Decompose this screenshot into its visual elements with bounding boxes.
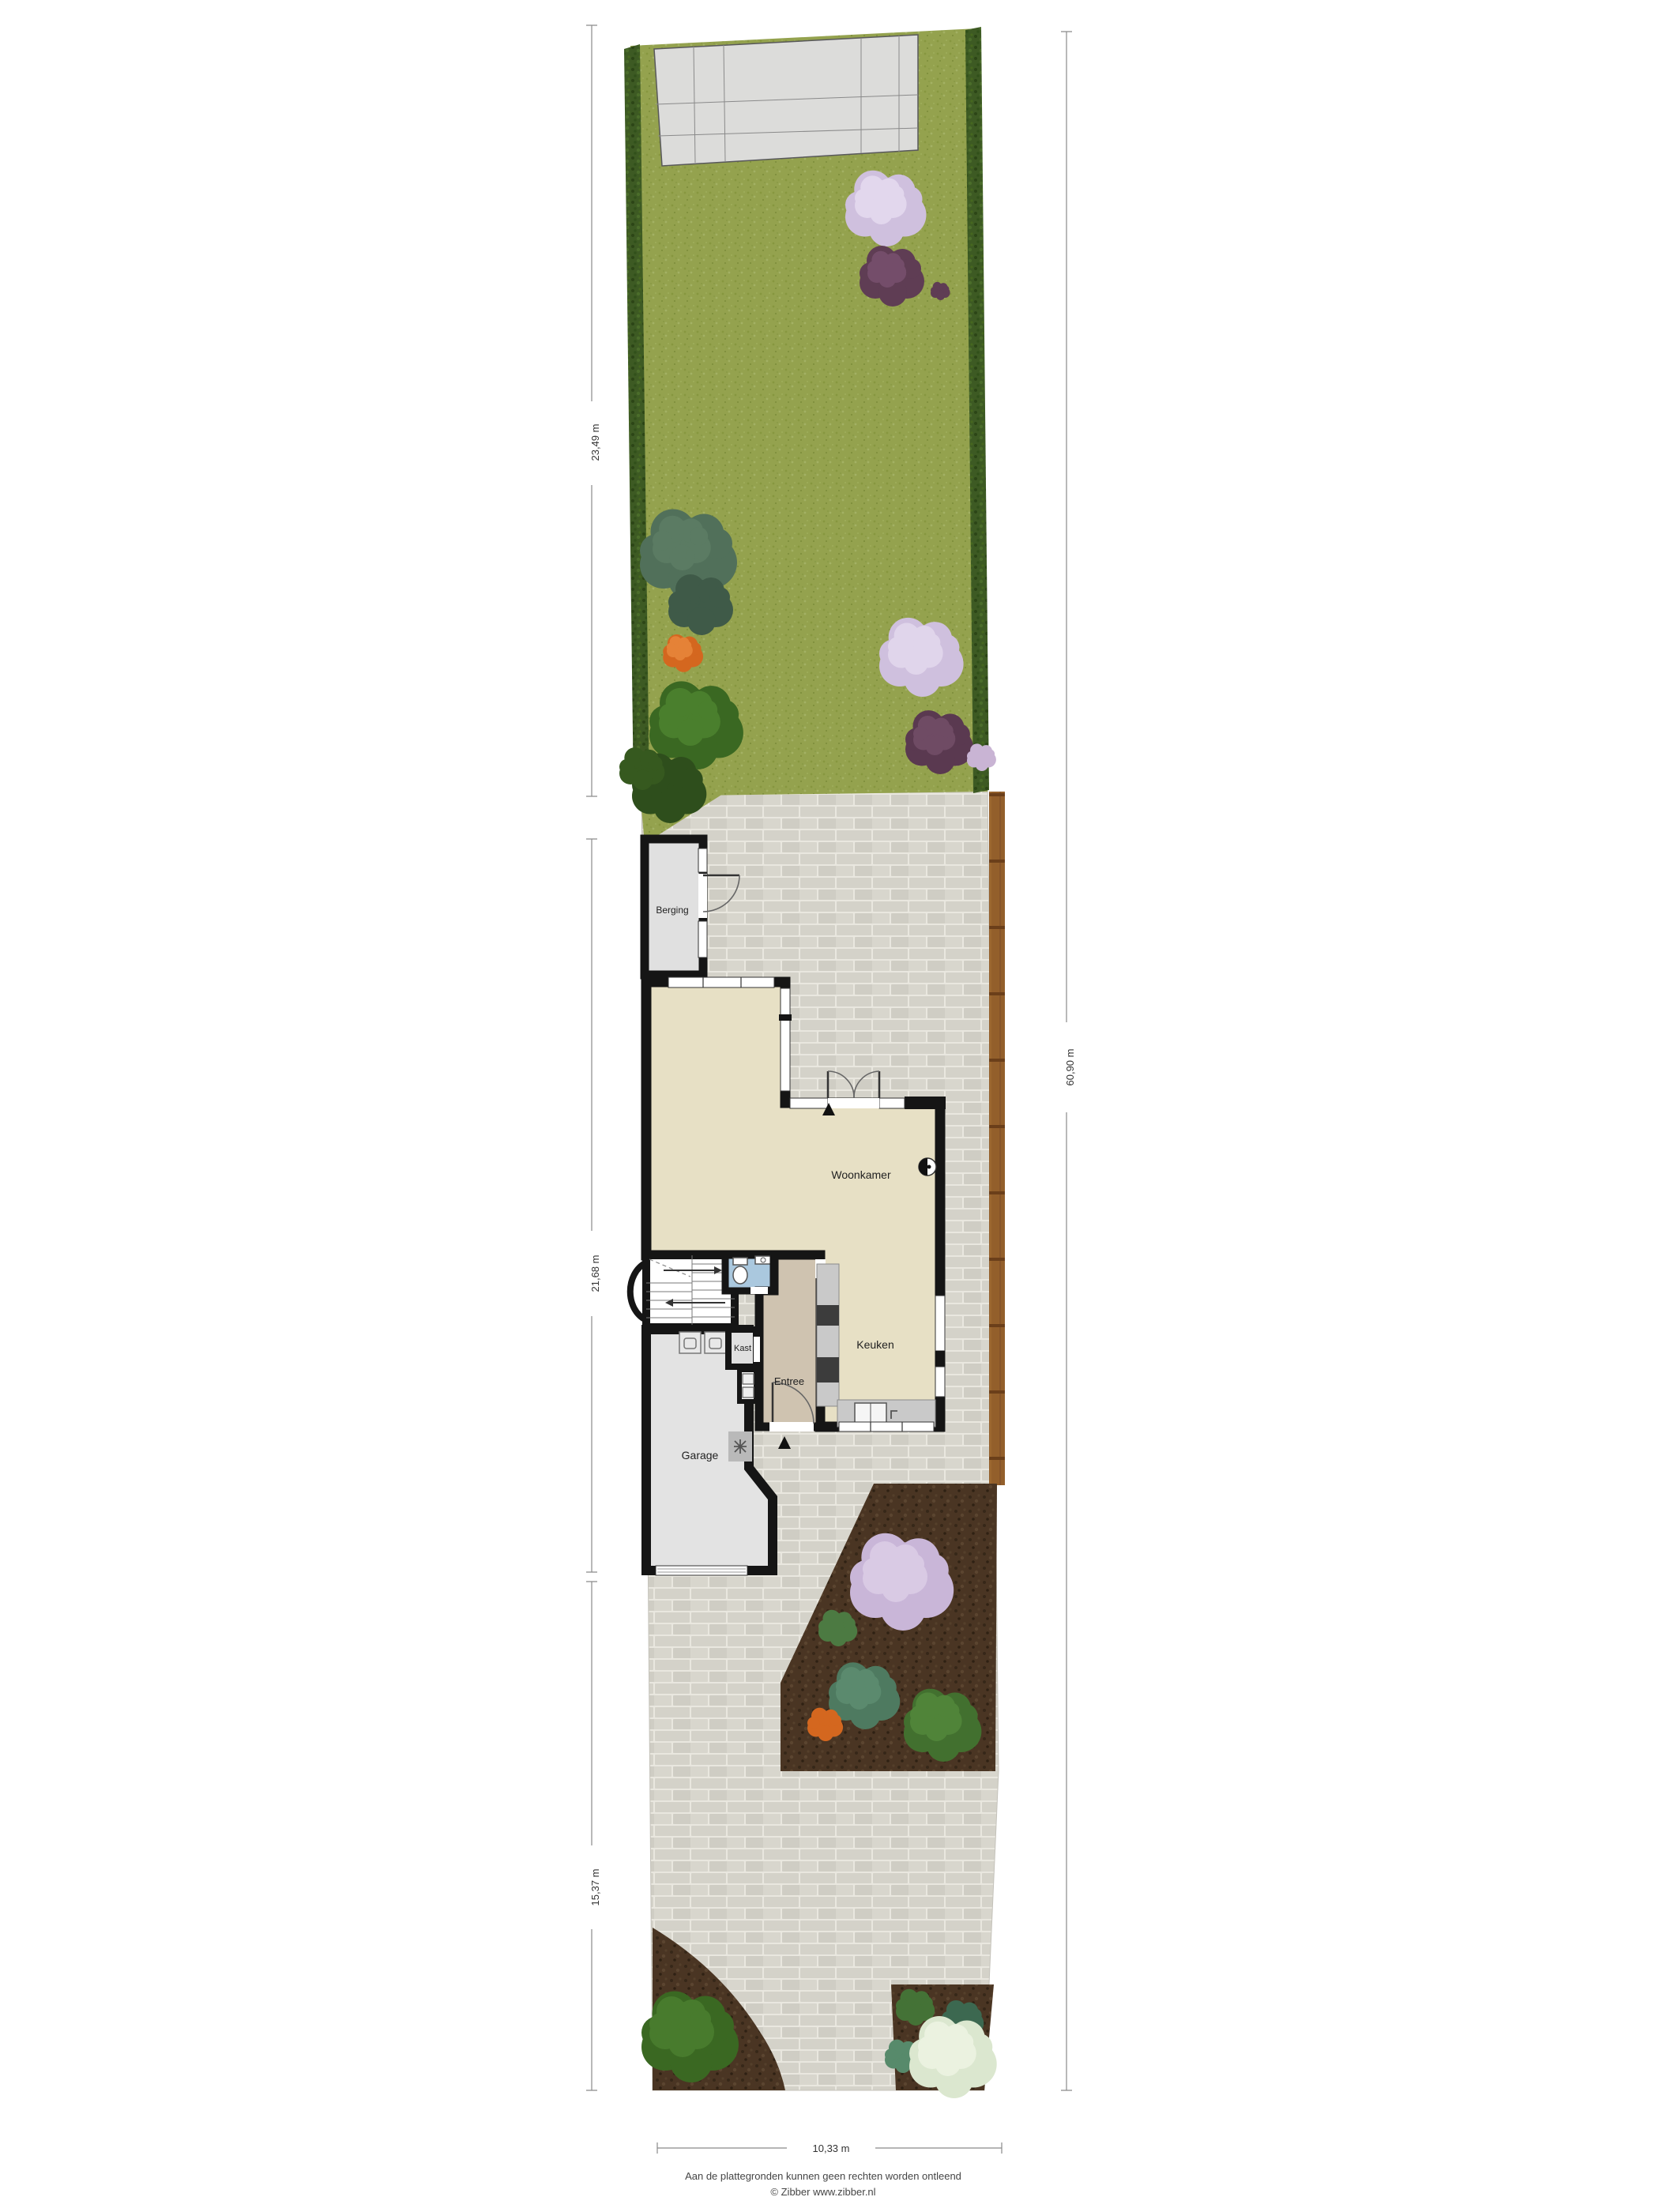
room-label-garage: Garage: [682, 1449, 719, 1461]
room-label-kast: Kast: [734, 1344, 751, 1353]
front-door-gap: [769, 1422, 814, 1431]
berging-window-top: [698, 848, 707, 872]
dim-house: 21,68 m: [589, 1255, 601, 1292]
dim-driveway: 15,37 m: [589, 1869, 601, 1906]
garage-door: [656, 1566, 747, 1575]
wc-tank: [733, 1258, 747, 1265]
keuken-window-south: [839, 1422, 934, 1431]
meter-shaft: [739, 1370, 756, 1401]
woonkamer-window-north: [668, 977, 774, 987]
room-label-berging: Berging: [656, 905, 688, 916]
wall-segment: [905, 1097, 946, 1109]
berging-window-bottom: [698, 921, 707, 957]
room-label-woonkamer: Woonkamer: [831, 1168, 891, 1181]
footer-disclaimer: Aan de plattegronden kunnen geen rechten…: [685, 2170, 961, 2182]
patio-window-right: [879, 1098, 905, 1108]
room-label-entree: Entree: [774, 1375, 804, 1387]
room-label-keuken: Keuken: [856, 1338, 893, 1351]
wc-bowl: [733, 1266, 747, 1284]
dim-total-depth: 60,90 m: [1064, 1049, 1076, 1086]
terrace-tiles: [654, 35, 918, 166]
footer-credit: © Zibber www.zibber.nl: [770, 2186, 875, 2198]
keuken-window-east-2: [935, 1367, 945, 1397]
dim-total-width: 10,33 m: [813, 2142, 850, 2154]
toilet-door-gap: [750, 1287, 768, 1294]
thermostat-icon: [919, 1158, 936, 1176]
kast-door-gap: [754, 1337, 760, 1362]
wooden-fence: [989, 792, 1005, 1485]
dim-garden: 23,49 m: [589, 424, 601, 461]
site-plan-page: Berging Woonkamer Keuken Kast Entree Gar…: [0, 0, 1659, 2212]
site-plan-drawing: Berging Woonkamer Keuken Kast Entree Gar…: [0, 0, 1659, 2212]
room-toilet: [725, 1255, 774, 1291]
woonkamer-window-east: [781, 988, 790, 1091]
garage-unit-mat: [728, 1431, 752, 1461]
patio-window-left: [790, 1098, 828, 1108]
french-doors-gap: [828, 1098, 879, 1108]
keuken-window-east-1: [935, 1296, 945, 1351]
